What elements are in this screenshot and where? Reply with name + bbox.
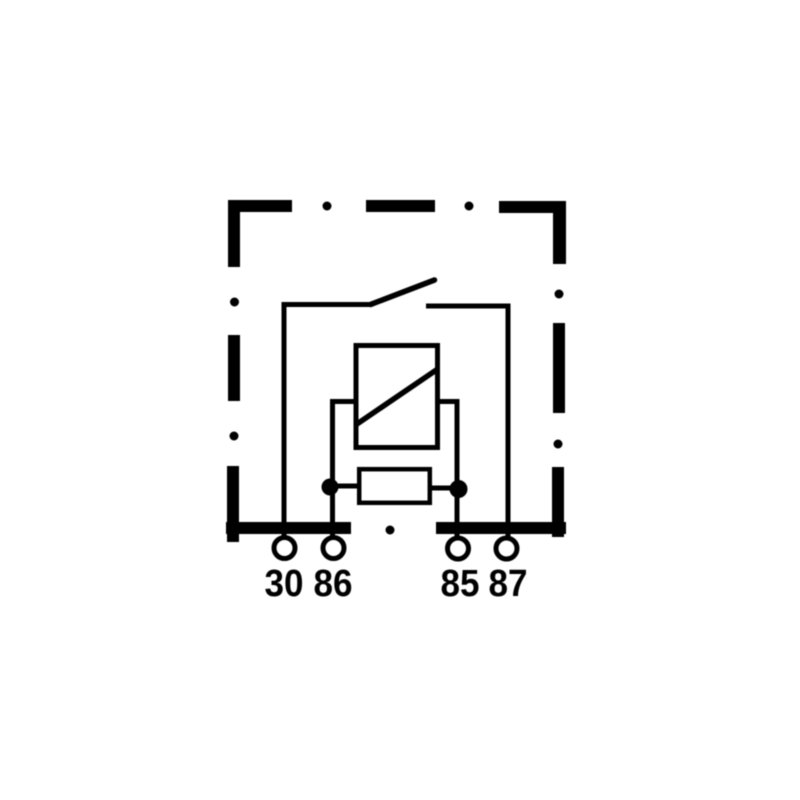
svg-text:86: 86	[314, 563, 353, 605]
svg-text:85: 85	[441, 563, 480, 605]
svg-text:87: 87	[489, 563, 528, 605]
svg-text:30: 30	[265, 563, 304, 605]
